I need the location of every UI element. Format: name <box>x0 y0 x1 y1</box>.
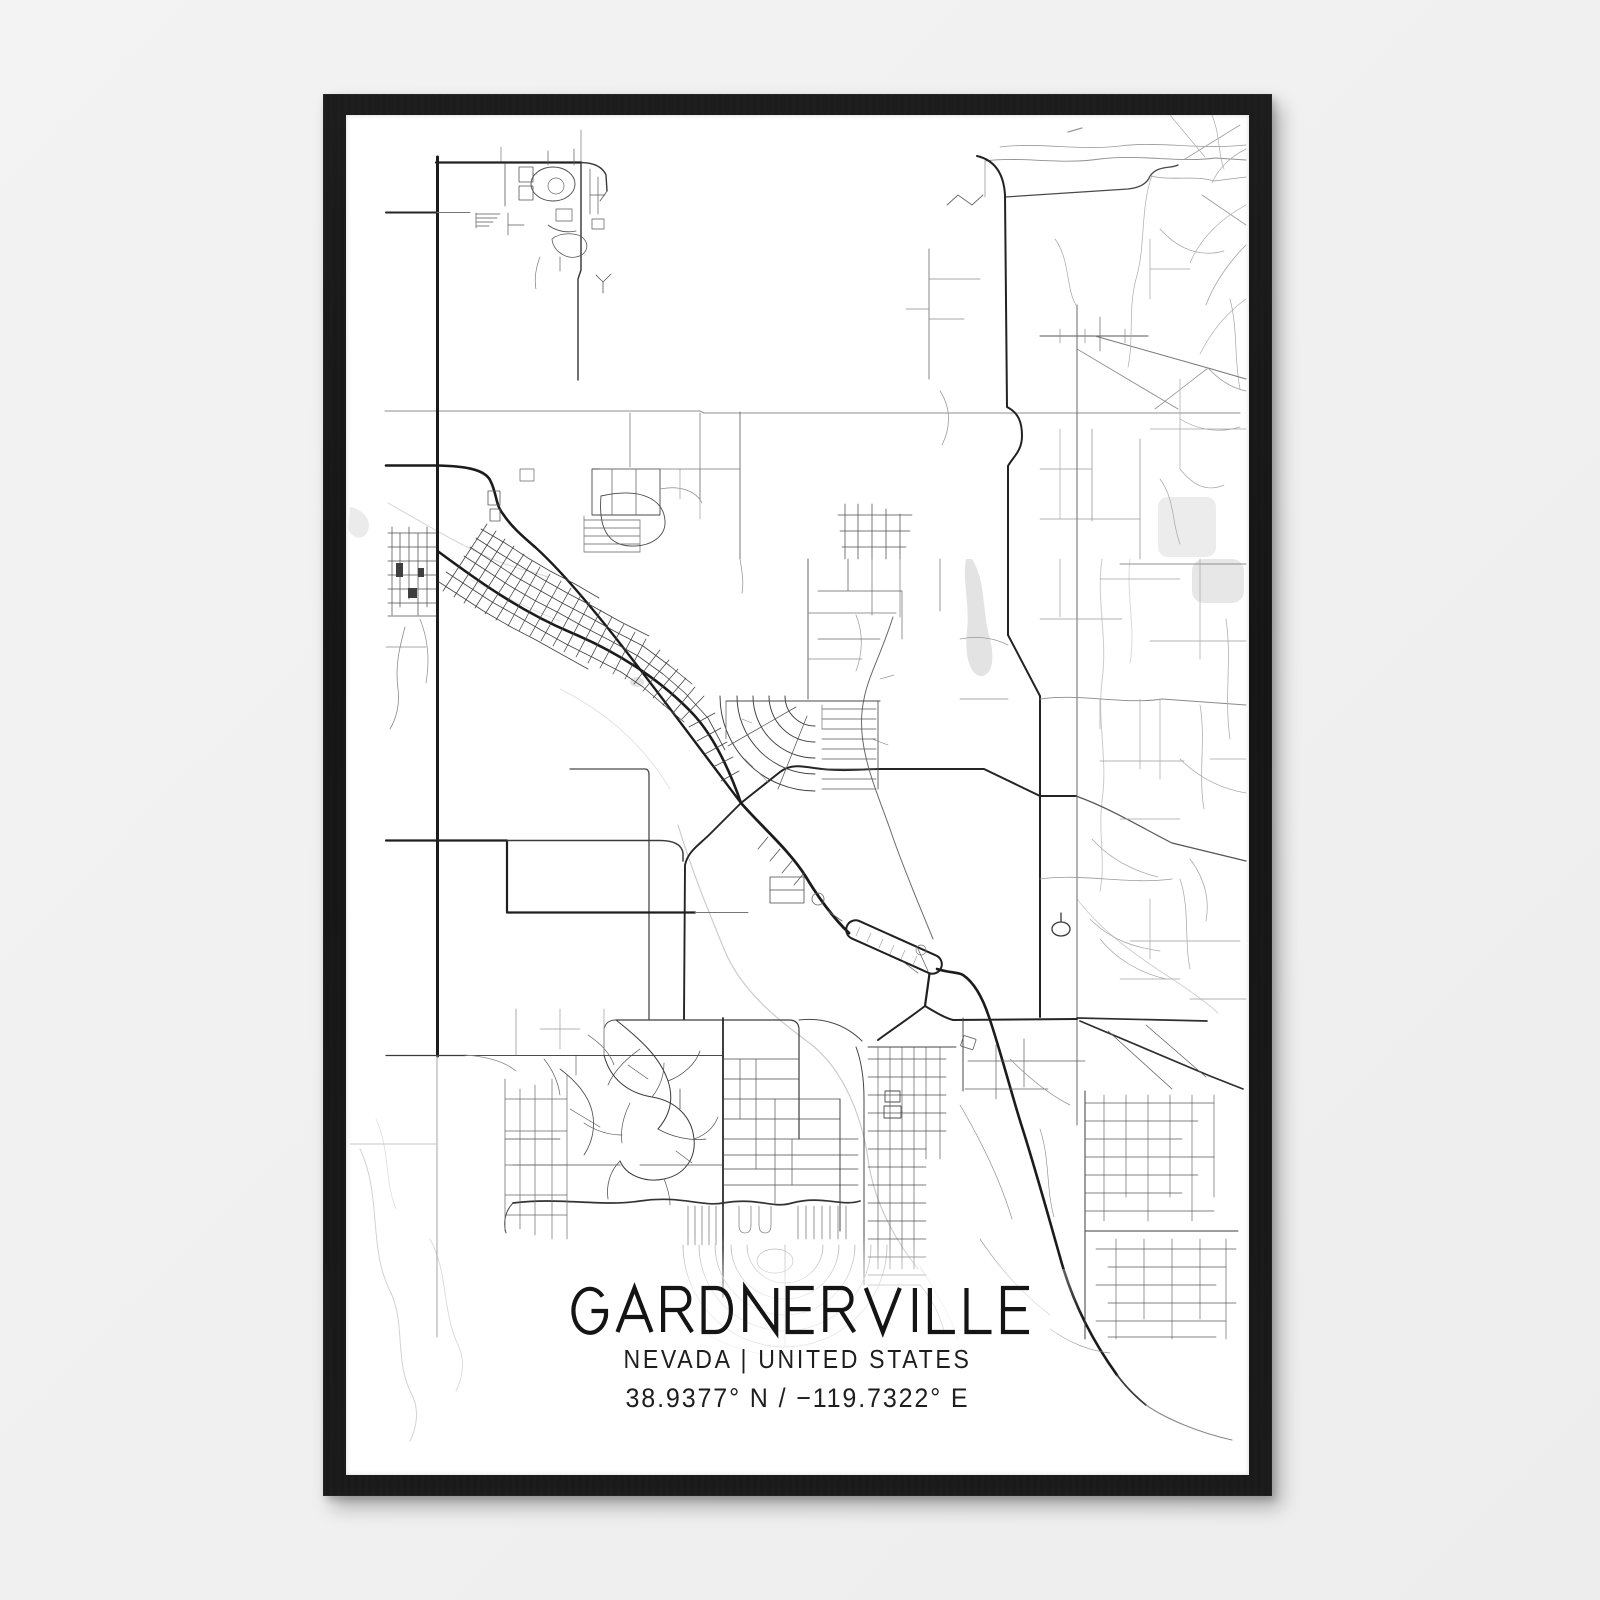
svg-text:38.9377° N / −119.7322° E: 38.9377° N / −119.7322° E <box>626 1383 970 1413</box>
svg-text:NEVADA | UNITED STATES: NEVADA | UNITED STATES <box>624 1344 972 1374</box>
